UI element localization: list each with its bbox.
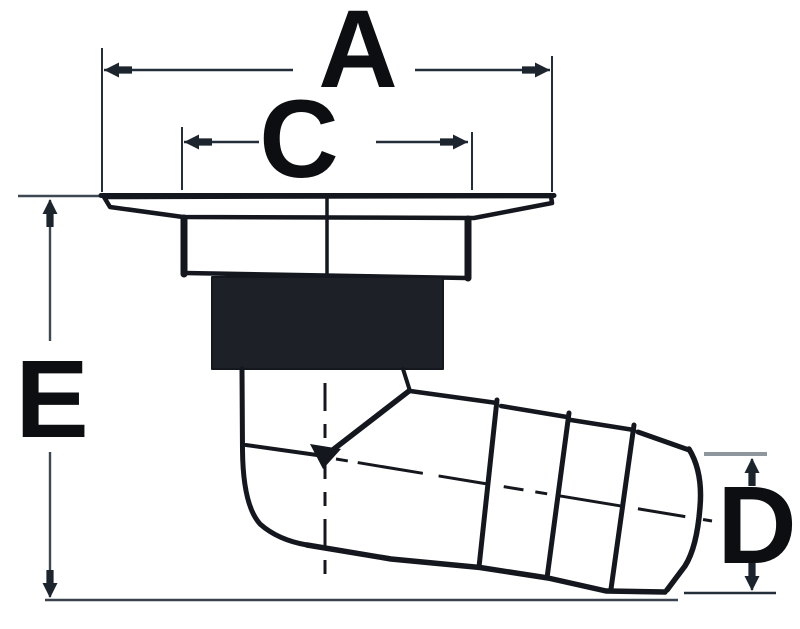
elbow-barb-seam [321, 391, 409, 459]
thread-section [212, 277, 443, 369]
dim-a-arrow-left [104, 63, 132, 78]
dim-label-d: D [717, 464, 796, 587]
block-barb-seam [403, 369, 410, 391]
barb-top-edge-1 [410, 391, 497, 403]
dim-label-e: E [15, 338, 88, 461]
barb-top-edge-4 [638, 432, 689, 450]
dim-c-arrow-right [440, 135, 468, 150]
barb-rib-3 [611, 425, 634, 589]
barb-axis-centerline [336, 459, 712, 521]
dim-c-arrow-left [184, 135, 212, 150]
dim-a-arrow-right [522, 63, 550, 78]
technical-drawing-page: A C E D [0, 0, 800, 629]
fitting-body [101, 196, 712, 593]
barb-top-edge-3 [571, 420, 634, 430]
elbow-seam [246, 445, 317, 455]
barb-end-cap [667, 449, 701, 590]
dim-label-c: C [259, 78, 338, 201]
dimension-e [18, 196, 678, 600]
dim-e-arrow-bottom [43, 570, 58, 598]
dim-e-arrow-top [43, 199, 58, 227]
elbow-left-edge [242, 369, 307, 545]
fitting-diagram: A C E D [0, 0, 800, 629]
barb-top-edge-2 [501, 406, 567, 417]
